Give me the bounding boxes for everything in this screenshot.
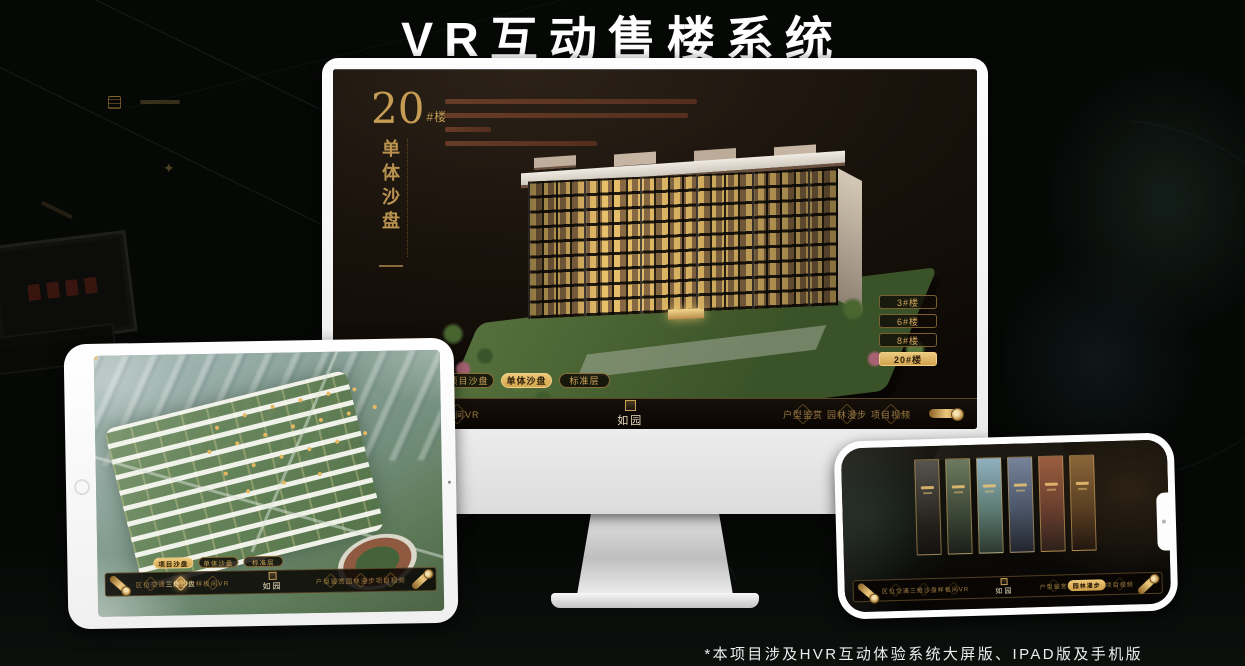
monitor-stand-base (551, 593, 759, 608)
tablet-camera-icon (448, 480, 451, 483)
nav-item[interactable]: 项目视频 (869, 399, 913, 429)
nav-item[interactable]: 样板间VR (196, 572, 230, 595)
scroll-handle-icon[interactable] (108, 574, 131, 595)
nav-item[interactable]: 项目视频 (376, 568, 406, 591)
floor-button-group: 3#楼 6#楼 8#楼 20#楼 (879, 295, 937, 366)
mode-tab[interactable]: 单体沙盘 (501, 373, 552, 388)
brand-logo[interactable]: 如园 (617, 400, 643, 428)
floor-button[interactable]: 3#楼 (879, 295, 937, 309)
logo-seal-icon (1001, 578, 1008, 585)
nav-item[interactable]: 区位交通 (881, 580, 910, 601)
bg-map-label (41, 201, 73, 219)
nav-right-group: 户型鉴赏 园林漫步 项目视频 (781, 399, 913, 429)
nav-item[interactable]: 户型鉴赏 (781, 399, 825, 429)
brand-logo[interactable]: 如园 (262, 572, 282, 592)
roof-dormers (534, 155, 576, 170)
nav-item[interactable]: 三维沙盘 (166, 572, 196, 595)
scroll-handle-icon[interactable] (411, 569, 433, 590)
scroll-handle-icon[interactable] (1137, 574, 1159, 596)
nav-item[interactable]: 园林漫步 (825, 399, 869, 429)
panorama-card[interactable] (1038, 455, 1066, 552)
panorama-card[interactable] (914, 459, 942, 556)
scroll-handle-icon[interactable] (856, 582, 879, 603)
mode-tab-group: 项目沙盘 单体沙盘 标准层 (443, 373, 610, 388)
tablet-device: 项目沙盘 单体沙盘 标准层 (64, 338, 459, 630)
panorama-card-group (914, 455, 1097, 556)
panorama-card[interactable] (945, 458, 973, 555)
compass-star-icon: ✦ (163, 160, 175, 177)
mode-tab[interactable]: 项目沙盘 (153, 557, 193, 569)
footnote-text: *本项目涉及HVR互动体验系统大屏版、IPAD版及手机版 (704, 643, 1143, 664)
nav-left-group: 区位交通 三维沙盘 样板间VR (881, 578, 969, 600)
scroll-handle-icon[interactable] (929, 409, 961, 418)
bg-road-line (0, 49, 377, 252)
tablet-screen: 项目沙盘 单体沙盘 标准层 (94, 350, 445, 617)
bg-scenery-fade (980, 60, 1245, 460)
nav-item[interactable]: 园林漫步 (1067, 574, 1106, 595)
nav-item[interactable]: 户型鉴赏 (316, 570, 346, 593)
mode-tab[interactable]: 标准层 (243, 556, 283, 568)
floor-button[interactable]: 8#楼 (879, 333, 937, 347)
nav-right-group: 户型鉴赏 园林漫步 项目视频 (1039, 573, 1134, 596)
phone-camera-icon (1161, 520, 1165, 524)
bg-map-label (140, 100, 180, 104)
phone-notch (1156, 492, 1171, 550)
phone-screen: 区位交通 三维沙盘 样板间VR (841, 439, 1171, 612)
logo-seal-icon (625, 400, 636, 411)
nav-item[interactable]: 样板间VR (937, 578, 969, 599)
tablet-home-button[interactable] (74, 478, 90, 494)
floor-button[interactable]: 6#楼 (879, 314, 937, 328)
logo-seal-icon (268, 572, 276, 580)
nav-item[interactable]: 园林漫步 (346, 569, 376, 592)
mode-tab[interactable]: 单体沙盘 (198, 556, 238, 568)
monitor-stand (577, 513, 733, 595)
tablet-mode-tab-group: 项目沙盘 单体沙盘 标准层 (153, 556, 283, 569)
page: ✦ VR互动售楼系统 20 #楼 单体沙盘 (0, 0, 1245, 666)
nav-item[interactable]: 项目视频 (1105, 573, 1134, 594)
nav-left-group: 区位交通 三维沙盘 样板间VR (136, 572, 230, 596)
panorama-card[interactable] (1007, 456, 1035, 553)
bg-map-marker-icon (108, 96, 121, 109)
nav-right-group: 户型鉴赏 园林漫步 项目视频 (316, 568, 406, 592)
panorama-card[interactable] (1069, 455, 1097, 552)
brand-logo[interactable]: 如园 (995, 578, 1013, 596)
phone-device: 区位交通 三维沙盘 样板间VR (834, 432, 1179, 619)
nav-item[interactable]: 三维沙盘 (909, 579, 938, 600)
panorama-card[interactable] (976, 457, 1004, 554)
nav-item[interactable]: 户型鉴赏 (1039, 575, 1068, 596)
floor-button[interactable]: 20#楼 (879, 352, 937, 366)
nav-item[interactable]: 区位交通 (136, 573, 166, 596)
mode-tab[interactable]: 标准层 (559, 373, 610, 388)
